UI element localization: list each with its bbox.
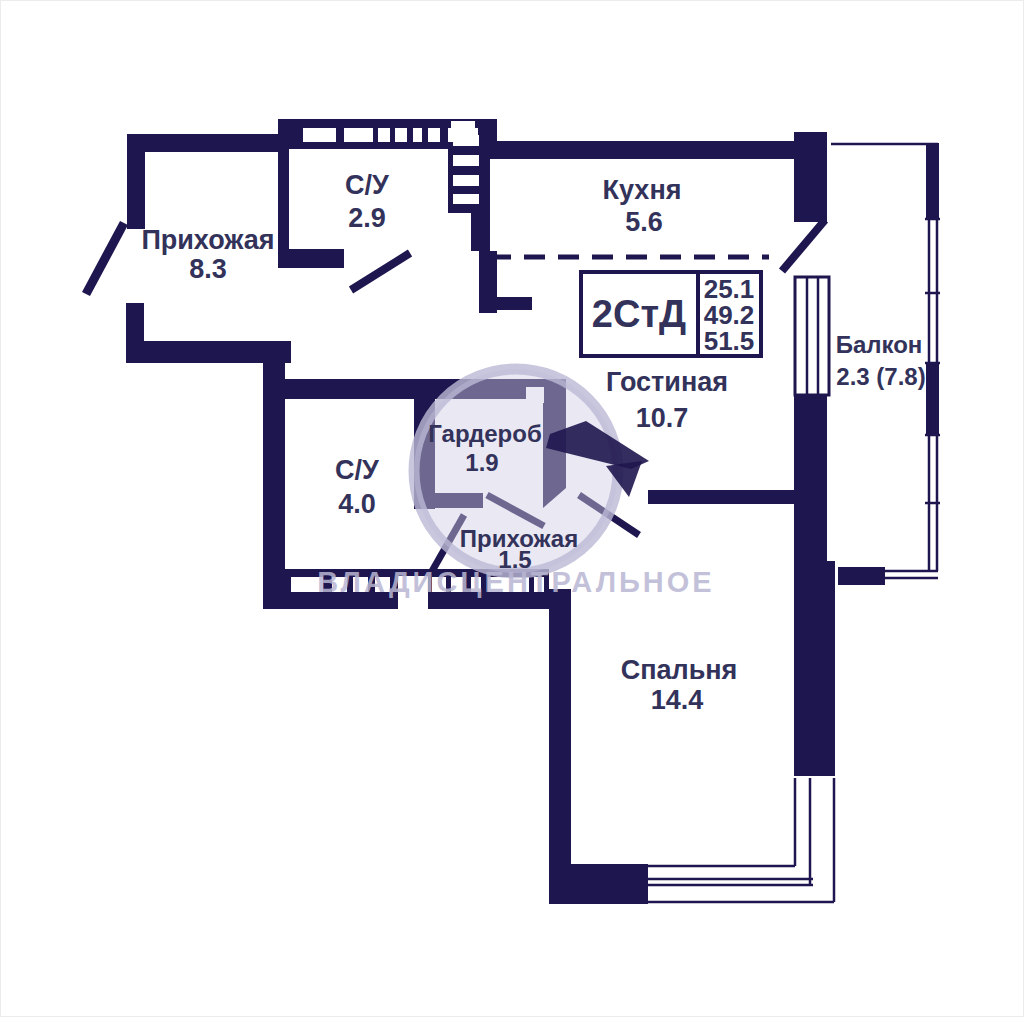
door-entry	[86, 223, 124, 294]
wall-segment	[127, 134, 145, 229]
room-name: Гостиная	[606, 367, 728, 397]
room-area: 2.3 (7.8)	[836, 363, 925, 390]
room-area: 14.4	[651, 685, 704, 715]
wall-segment	[794, 561, 835, 776]
door-kitchen-balcony	[782, 220, 825, 271]
room-name: С/У	[345, 170, 390, 200]
room-area: 1.9	[465, 449, 498, 476]
room-name: Балкон	[836, 331, 923, 358]
door-bathroom-top	[351, 253, 410, 290]
wall-segment	[648, 490, 794, 504]
wall-hatch-slot	[303, 128, 336, 142]
wall-segment	[484, 141, 794, 159]
wall-segment	[479, 251, 497, 313]
wall-segment	[794, 394, 827, 561]
shaft-rung	[453, 135, 479, 146]
room-name: С/У	[335, 455, 380, 485]
balcony-post	[838, 567, 885, 585]
room-area: 5.6	[625, 207, 663, 237]
shaft-rung	[453, 175, 479, 186]
wall-hatch-slot	[395, 128, 407, 142]
wall-segment	[549, 589, 571, 904]
wall-segment	[278, 249, 344, 268]
wall-hatch-slot	[378, 128, 390, 142]
wall-hatch-slot	[344, 128, 373, 142]
wall-segment	[549, 864, 648, 904]
unit-area-3: 51.5	[704, 326, 755, 356]
room-label-bathroom-top: С/У 2.9	[345, 170, 390, 233]
wall-segment	[127, 134, 287, 152]
room-label-bathroom-main: С/У 4.0	[335, 455, 380, 519]
room-label-balcony: Балкон 2.3 (7.8)	[836, 331, 926, 390]
room-name: Кухня	[603, 175, 682, 205]
wall-segment	[471, 213, 490, 251]
window-living-balcony	[795, 277, 829, 395]
floor-plan-image: ВЛАДИСЦЕНТРАЛЬНОЕ 2СтД 25.1 49.2 51.5 Пр…	[0, 0, 1024, 1017]
floor-plan-svg: ВЛАДИСЦЕНТРАЛЬНОЕ 2СтД 25.1 49.2 51.5 Пр…	[1, 1, 1024, 1017]
room-name: Прихожая	[141, 225, 274, 255]
shaft-rung	[453, 155, 479, 166]
room-area: 1.5	[498, 546, 531, 573]
room-name: Спальня	[621, 655, 738, 685]
wall-segment	[794, 132, 827, 222]
wall-segment	[126, 341, 291, 363]
room-label-hallway-main: Прихожая 8.3	[141, 225, 274, 284]
room-area: 10.7	[636, 403, 689, 433]
wall-segment	[278, 149, 289, 251]
wall-hatch-slot	[428, 128, 440, 142]
room-name: Гардероб	[428, 420, 541, 447]
unit-info-box: 2СтД 25.1 49.2 51.5	[581, 272, 761, 356]
room-area: 2.9	[348, 203, 386, 233]
wall-segment	[497, 297, 532, 310]
wall-segment	[263, 363, 285, 609]
wall-hatch-slot	[413, 128, 422, 142]
room-label-bedroom: Спальня 14.4	[621, 655, 738, 715]
room-area: 8.3	[189, 254, 227, 284]
room-area: 4.0	[338, 489, 376, 519]
room-label-living-room: Гостиная 10.7	[606, 367, 728, 433]
shaft-rung	[453, 194, 479, 204]
unit-type-label: 2СтД	[592, 293, 686, 335]
room-label-kitchen: Кухня 5.6	[603, 175, 682, 237]
balcony-post	[926, 143, 939, 219]
